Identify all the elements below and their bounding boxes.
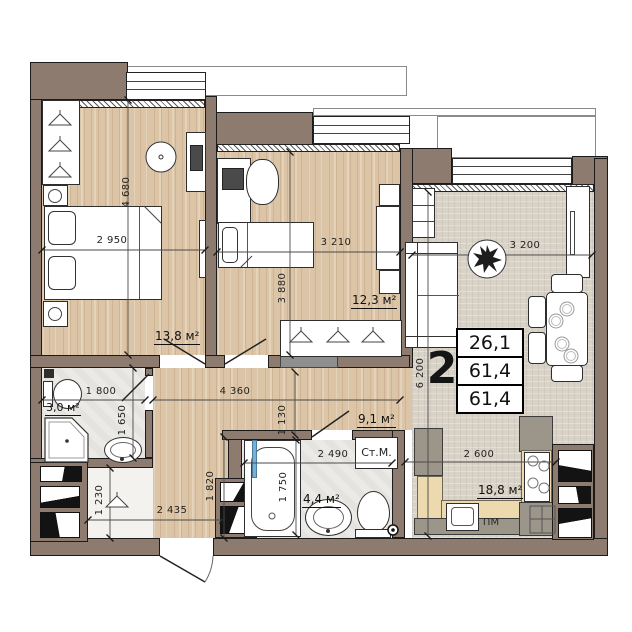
dim-living-width: 3 200 <box>500 239 550 253</box>
window-living-room <box>452 158 572 184</box>
area-label-bathroom-2: 4,4 м² <box>302 493 341 508</box>
monitor-bedroom-2 <box>222 168 244 190</box>
wall-bathroom1-right-a <box>145 368 153 376</box>
vent-block <box>558 508 592 538</box>
area-label-hallway: 9,1 м² <box>357 413 396 428</box>
blanket-line <box>247 223 248 267</box>
window-bedroom-2 <box>313 116 410 144</box>
sofa <box>405 242 458 348</box>
wall-hatch-bedroom-2 <box>217 144 400 152</box>
toilet-2-bowl <box>357 491 390 532</box>
dim-bedroom2-height: 3 880 <box>276 263 290 313</box>
pillow <box>222 227 238 263</box>
pillow <box>48 211 76 245</box>
kitchen-cabinet-grey-left <box>414 428 443 476</box>
single-bed <box>218 222 314 268</box>
dim-bedroom1-width: 2 950 <box>87 234 137 248</box>
wall-bathroom2-top-a <box>222 430 312 440</box>
dining-table <box>546 292 588 366</box>
nightstand-bottom <box>43 301 68 327</box>
tv-cabinet <box>566 186 590 278</box>
kitchen-cabinet-grey-top-right <box>519 416 553 452</box>
wall-right <box>594 158 608 556</box>
wall-bedroom1-bedroom2 <box>205 96 217 368</box>
window-bedroom-1 <box>126 72 206 100</box>
pillow <box>48 256 76 290</box>
computer-bedroom-1 <box>190 145 203 171</box>
entrance-door-arc <box>205 556 213 582</box>
dim-bathroom2-width: 2 490 <box>308 448 358 462</box>
total-area-value: 61,4 <box>458 356 522 384</box>
double-bed <box>44 206 162 300</box>
dining-chair <box>528 332 546 364</box>
washing-machine-box: Ст.М. <box>355 437 398 469</box>
side-table-top <box>379 184 400 206</box>
nightstand-top <box>43 185 68 206</box>
balcony-outline-mid <box>313 108 596 116</box>
dim-bathroom1-height: 1 650 <box>116 395 130 445</box>
floor-plan: Ст.М. <box>0 0 632 632</box>
wall-top-left-block <box>30 62 128 100</box>
wardrobe-tall-bedroom-2 <box>376 206 400 270</box>
dim-bathroom2-height: 1 750 <box>277 462 291 512</box>
area-label-bedroom-2: 12,3 м² <box>351 294 397 309</box>
vent-block <box>40 466 82 482</box>
stove <box>524 452 550 502</box>
vent-block <box>558 486 591 504</box>
dishwasher-label: ПМ <box>477 516 505 530</box>
vent-grille <box>44 369 54 378</box>
dim-bedroom2-width: 3 210 <box>311 236 361 250</box>
desk-chair <box>246 159 279 205</box>
kitchen-sink-basin <box>451 507 474 526</box>
area-label-bathroom-1: 3,0 м² <box>45 401 81 416</box>
area-label-bedroom-1: 13,8 м² <box>154 330 200 345</box>
blanket-line <box>139 207 140 299</box>
shower-screen <box>252 440 257 478</box>
rooms-count: 2 <box>424 346 460 392</box>
vent-block <box>558 450 592 482</box>
wall-bedrooms-bottom-a <box>30 355 160 368</box>
area-label-kitchen: 18,8 м² <box>477 484 523 499</box>
vent-block <box>40 486 80 508</box>
wardrobe-bedroom-2 <box>280 320 402 357</box>
living-area-value: 26,1 <box>458 330 522 356</box>
dim-hall-lower-width: 2 435 <box>147 504 197 518</box>
kitchen-counter-left <box>417 476 443 520</box>
dim-niche-height: 1 230 <box>93 475 107 525</box>
dim-hallway-width: 4 360 <box>210 385 260 399</box>
wall-tv <box>199 220 206 278</box>
wall-step-block-1 <box>205 112 313 146</box>
washing-machine-label: Ст.М. <box>361 446 392 459</box>
dim-bedroom1-height: 4 680 <box>120 167 134 217</box>
dim-hall-lower-height: 1 820 <box>204 461 218 511</box>
wall-segment-grey <box>280 356 338 368</box>
kitchen-sink <box>446 503 479 531</box>
toilet-2-tank <box>355 529 391 538</box>
dining-chair <box>528 296 546 328</box>
vent-block <box>40 512 80 538</box>
balcony-outline-right <box>437 116 596 158</box>
kitchen-cabinet-grey-bottom-right <box>519 502 555 536</box>
dining-chair <box>551 365 583 382</box>
side-table-bottom <box>379 270 400 294</box>
dim-hallway-height: 1 130 <box>276 395 290 445</box>
wall-bedrooms-bottom-b <box>205 355 225 368</box>
shelf-unit <box>412 188 435 238</box>
reduced-area-value: 61,4 <box>458 384 522 412</box>
entrance-door-leaf <box>160 556 205 582</box>
dim-kitchen-width: 2 600 <box>454 448 504 462</box>
dining-chair <box>551 274 583 293</box>
apartment-info-table: 26,1 61,4 61,4 <box>456 328 524 414</box>
wall-bottom-right <box>213 538 608 556</box>
wall-bathroom1-right-b <box>145 410 153 458</box>
wardrobe-bedroom-1 <box>42 100 80 185</box>
